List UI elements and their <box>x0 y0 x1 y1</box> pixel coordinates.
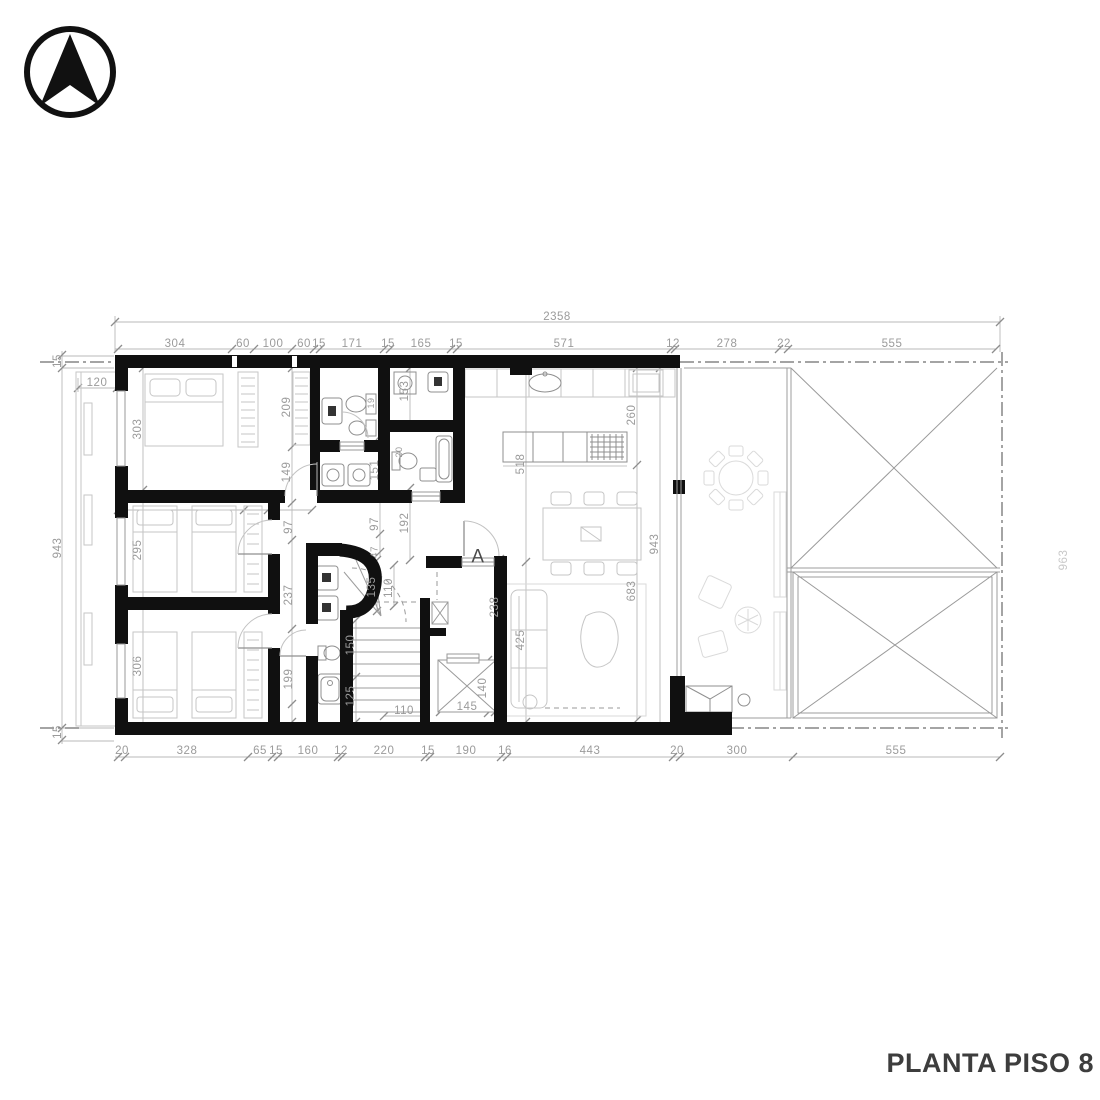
dim-label: 47 <box>370 546 381 558</box>
dim-label: 190 <box>456 745 477 757</box>
dim-label: 199 <box>283 669 295 690</box>
dim-label: 2358 <box>543 311 571 323</box>
dim-label: 555 <box>886 745 907 757</box>
dim-label: 151 <box>369 460 381 481</box>
dim-label: 135 <box>366 577 378 598</box>
dim-label: 97 <box>283 520 295 534</box>
dim-label: 15 <box>312 338 326 350</box>
dim-label: 12 <box>666 338 680 350</box>
dim-label: 963 <box>1058 550 1070 571</box>
dim-label: 120 <box>87 377 108 389</box>
dim-label: 110 <box>394 705 414 717</box>
walls <box>115 355 732 735</box>
dim-label: 238 <box>489 597 501 618</box>
dim-label: 15 <box>421 745 435 757</box>
dim-label: 300 <box>727 745 748 757</box>
dim-label: 60 <box>297 338 311 350</box>
dim-label: 160 <box>298 745 319 757</box>
dim-label: 60 <box>236 338 250 350</box>
dim-label: 97 <box>369 517 381 531</box>
dim-label: 943 <box>649 534 661 555</box>
dim-label: 425 <box>515 630 527 651</box>
section-marker-a: A <box>471 547 484 568</box>
floor-plan-drawing: 2358304601006015171151651557112278225552… <box>0 0 1100 1100</box>
dim-label: 171 <box>342 338 363 350</box>
dim-label: 125 <box>345 686 357 707</box>
dim-label: 19 <box>366 397 376 408</box>
glass-facade <box>677 368 681 676</box>
dim-label: 237 <box>283 585 295 606</box>
dim-label: 260 <box>626 405 638 426</box>
dim-label: 15 <box>52 354 64 368</box>
dim-label: 683 <box>626 581 638 602</box>
dim-label: 304 <box>165 338 186 350</box>
dim-label: 571 <box>554 338 575 350</box>
dim-label: 303 <box>132 419 144 440</box>
dim-label: 140 <box>477 678 489 699</box>
dim-label: 165 <box>411 338 432 350</box>
dim-label: 306 <box>132 656 144 677</box>
balcony <box>76 372 118 726</box>
dim-label: 943 <box>52 538 64 559</box>
dim-label: 209 <box>281 397 293 418</box>
floor-plan-sheet: { "title": "PLANTA PISO 8", "logo": {"ic… <box>0 0 1100 1100</box>
dim-label: 20 <box>394 446 404 457</box>
dim-label: 15 <box>381 338 395 350</box>
north-arrow-icon <box>27 29 113 115</box>
dim-label: 153 <box>399 381 411 402</box>
drawing-title: PLANTA PISO 8 <box>886 1048 1094 1079</box>
dim-label: 22 <box>777 338 791 350</box>
dim-label: 110 <box>383 578 395 598</box>
dim-label: 295 <box>132 540 144 561</box>
dim-label: 20 <box>670 745 684 757</box>
dim-label: 12 <box>334 745 348 757</box>
dim-label: 220 <box>374 745 395 757</box>
dim-label: 20 <box>115 745 129 757</box>
boundary-lines <box>40 352 1008 738</box>
dim-label: 145 <box>457 701 478 713</box>
dimension-lines <box>58 316 1004 761</box>
terrace-chairs <box>704 446 768 510</box>
dim-label: 100 <box>263 338 284 350</box>
dim-label: 16 <box>498 745 512 757</box>
dim-label: 15 <box>449 338 463 350</box>
dim-label: 443 <box>580 745 601 757</box>
terrace <box>684 368 1000 718</box>
dim-label: 150 <box>345 635 357 656</box>
dim-label: 518 <box>515 454 527 475</box>
dim-label: 278 <box>717 338 738 350</box>
dim-label: 192 <box>399 513 411 534</box>
dim-label: 149 <box>281 462 293 483</box>
dim-label: 328 <box>177 745 198 757</box>
dim-label: 65 <box>253 745 267 757</box>
dim-label: 15 <box>52 725 64 739</box>
dim-label: 555 <box>882 338 903 350</box>
dim-label: 15 <box>269 745 283 757</box>
